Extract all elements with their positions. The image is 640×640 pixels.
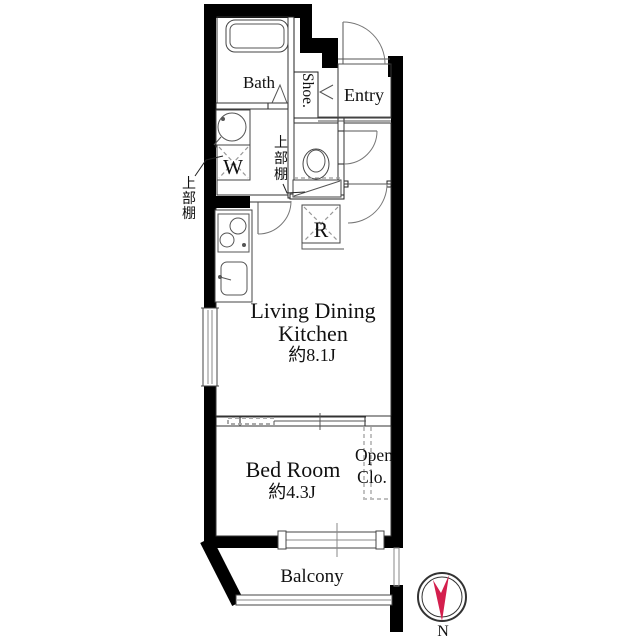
fridge-label: R [314,217,329,242]
bedroom-bottom-wall-left [213,536,283,548]
toilet [293,149,341,197]
bath-label: Bath [243,73,276,92]
floor-plan: Bath Shoe. Entry W R 上 部 棚 上 部 棚 Living … [0,0,640,640]
svg-text:Living Dining: Living Dining [250,298,375,323]
svg-text:棚: 棚 [182,206,196,222]
corridor-wall-upper [338,118,344,131]
svg-text:上: 上 [274,135,288,151]
shoe-label: Shoe. [299,73,316,108]
entry-step-wall-vertical [300,4,312,53]
svg-text:部: 部 [274,151,288,167]
entry-door-jamb-block [322,53,338,68]
balcony-label: Balcony [280,566,344,587]
svg-text:Open: Open [355,445,393,465]
bath-right-wall [288,17,294,198]
svg-text:棚: 棚 [274,167,288,183]
svg-text:Clo.: Clo. [357,467,387,487]
ldk-area: 約8.1J [288,345,336,365]
entry-label: Entry [344,85,384,105]
bedroom-balcony-window [278,523,384,557]
svg-text:Kitchen: Kitchen [278,321,348,346]
ldk-label: Living Dining Kitchen 約8.1J [250,298,375,365]
washer-label: W [223,155,243,179]
top-wall [204,4,312,18]
bedroom-label: Bed Room 約4.3J [246,457,341,502]
upper-shelf-left-label: 上 部 棚 [182,176,196,222]
right-wall [391,56,403,548]
kitchen-counter [215,210,252,302]
svg-text:部: 部 [182,191,196,207]
balcony-pillar [390,585,403,632]
ldk-side-window [201,308,219,386]
left-wall-upper [204,4,216,310]
kitchen-stub-wall [204,196,250,208]
compass-north-label: N [437,623,449,640]
washbasin [214,110,250,147]
balcony-divider [394,548,399,586]
bath-washroom-wall [216,103,268,109]
wc-door [344,131,377,164]
washroom-door [258,201,291,234]
balcony-angled-wall [206,540,238,603]
open-closet-label: Open Clo. [355,445,393,487]
svg-text:Bed Room: Bed Room [246,457,341,482]
left-wall-lower [204,384,216,548]
compass: N [418,573,466,640]
entry-step-wall-horizontal [312,38,338,53]
shoe-cabinet-doors [320,85,333,99]
floor-plan-page: Bath Shoe. Entry W R 上 部 棚 上 部 棚 Living … [0,0,640,640]
bathtub [226,20,288,52]
bedroom-partition-right [365,416,391,426]
bedroom-area: 約4.3J [268,482,316,502]
upper-shelf-wc-label: 上 部 棚 [274,135,288,183]
ldk-door [348,184,387,223]
entry-door [338,22,390,64]
svg-text:上: 上 [182,176,196,192]
